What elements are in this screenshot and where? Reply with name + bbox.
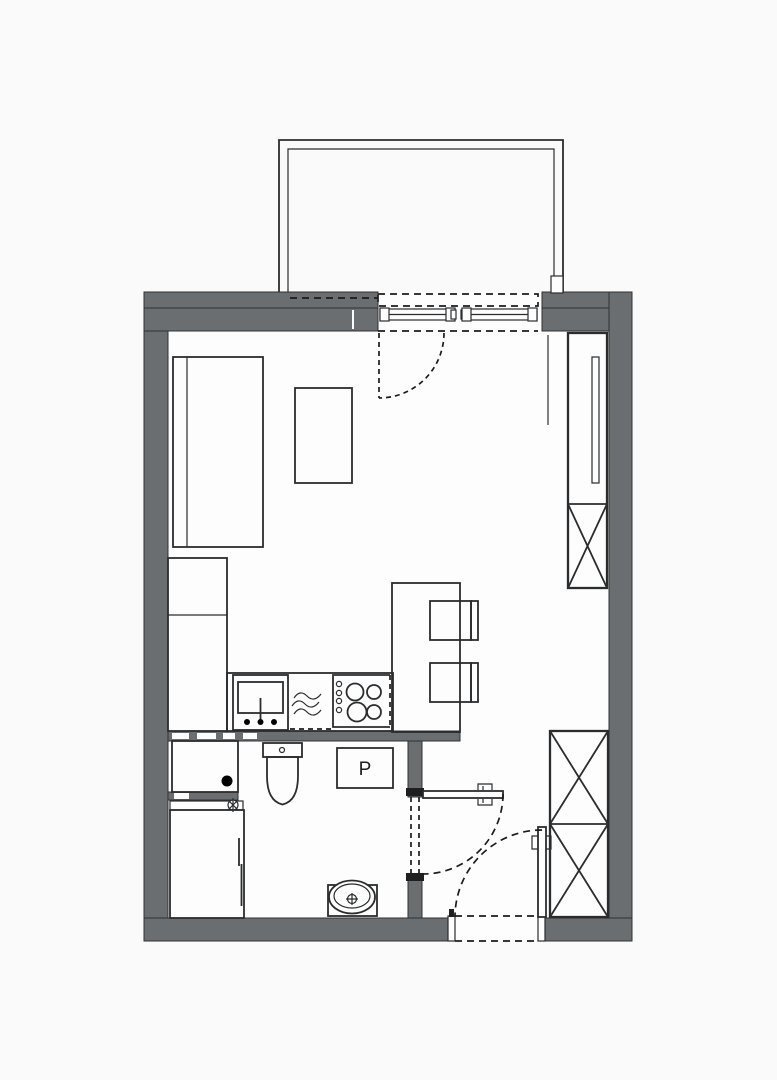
wall-hatch bbox=[223, 733, 235, 739]
wall-top-outer-left bbox=[144, 292, 378, 308]
window-frame-end-block bbox=[551, 276, 563, 293]
balcony-outer-parapet bbox=[279, 140, 563, 292]
wall-left bbox=[144, 292, 168, 941]
wall-right bbox=[609, 292, 632, 941]
wall-joint-line bbox=[352, 310, 354, 329]
entrance-door-leaf bbox=[538, 827, 546, 917]
wall-hatch bbox=[174, 793, 189, 799]
wall-bottom-right bbox=[545, 918, 632, 941]
floor-drain-dot bbox=[222, 776, 233, 787]
wall-hatch bbox=[172, 733, 189, 739]
wall-bottom-left bbox=[144, 918, 448, 941]
wall-top-inner-left bbox=[144, 308, 378, 331]
balcony bbox=[279, 140, 563, 292]
window-end-cap bbox=[528, 308, 537, 321]
wall-hatch bbox=[197, 733, 216, 739]
bathroom-door-frame-cap-top bbox=[406, 788, 424, 796]
window-end-cap bbox=[380, 308, 389, 321]
wall-hatch bbox=[243, 733, 257, 739]
floor-plan-page: P bbox=[0, 0, 777, 1080]
apartment-floor bbox=[144, 292, 632, 941]
sink-tap-handle bbox=[271, 719, 277, 725]
bathroom-door-frame-cap-bottom bbox=[406, 873, 424, 881]
sink-tap-handle bbox=[258, 719, 264, 725]
entrance-jamb-cap bbox=[449, 909, 454, 917]
window-end-cap bbox=[462, 308, 471, 321]
entrance-jamb-right bbox=[538, 916, 545, 941]
sink-tap-handle bbox=[244, 719, 250, 725]
balcony-inner-parapet bbox=[288, 149, 554, 292]
wall-bathroom-right-lower bbox=[408, 880, 422, 918]
floor-plan-canvas: P bbox=[0, 0, 777, 1080]
window-mid-cap bbox=[451, 310, 456, 319]
washing-machine-label: P bbox=[359, 759, 372, 780]
entrance-jamb-left bbox=[448, 916, 455, 941]
bathroom-door-leaf bbox=[423, 791, 503, 798]
